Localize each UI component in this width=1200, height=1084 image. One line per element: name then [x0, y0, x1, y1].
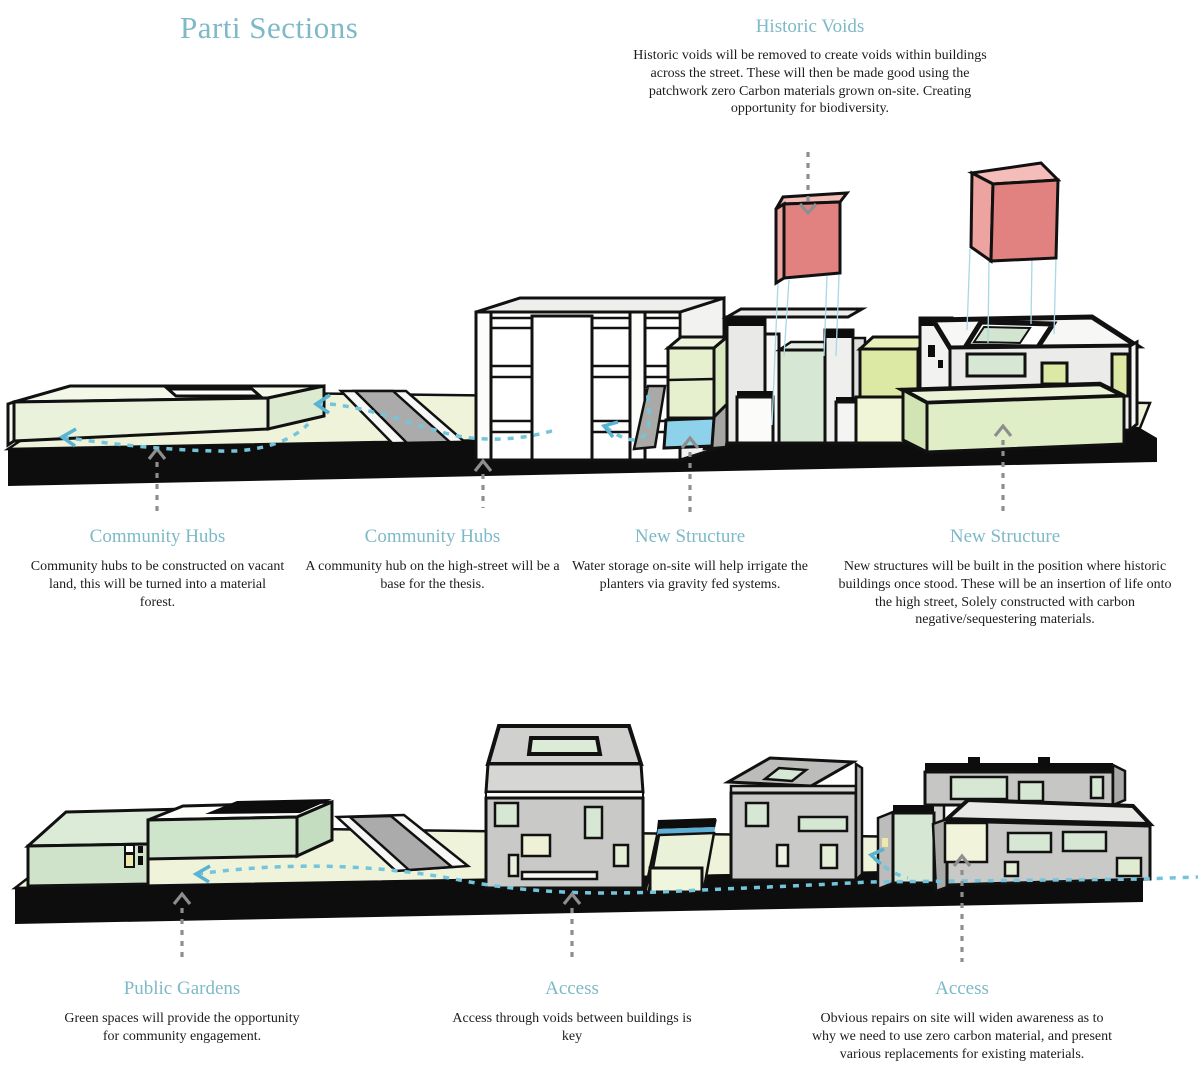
window [522, 835, 550, 856]
annotation-body: Community hubs to be constructed on vaca… [30, 558, 285, 611]
window [1091, 777, 1103, 798]
window [1042, 363, 1067, 384]
annotation-access-1: Access Access through voids between buil… [442, 978, 702, 1046]
window [522, 872, 597, 879]
annotation-access-2: Access Obvious repairs on site will wide… [807, 978, 1117, 1063]
parti-sections-diagram: Parti Sections Historic Voids Historic v… [0, 0, 1200, 1084]
annotation-body: Water storage on-site will help irrigate… [565, 558, 815, 594]
right-repaired-buildings [925, 757, 1150, 891]
window [509, 855, 518, 876]
window [614, 845, 628, 866]
window [585, 807, 602, 838]
annotation-community-hubs-2: Community Hubs A community hub on the hi… [305, 526, 560, 594]
window [951, 777, 1007, 799]
annotation-heading: Access [442, 978, 702, 1000]
annotation-heading: Historic Voids [630, 16, 990, 38]
window [746, 803, 768, 826]
core-tower [532, 316, 592, 460]
annotation-heading: Public Gardens [57, 978, 307, 1000]
window [945, 823, 987, 862]
annotation-heading: Community Hubs [305, 526, 560, 548]
window [495, 803, 518, 826]
annotation-body: A community hub on the high-street will … [305, 558, 560, 594]
middle-repaired-building [728, 758, 862, 880]
window [799, 817, 847, 831]
annotation-heading: Community Hubs [30, 526, 285, 548]
annotation-heading: New Structure [832, 526, 1178, 548]
page-title: Parti Sections [180, 10, 358, 46]
annotation-body: Historic voids will be removed to create… [630, 47, 990, 118]
annotation-public-gardens: Public Gardens Green spaces will provide… [57, 978, 307, 1046]
historic-void-cube-left [776, 193, 847, 283]
top-section-drawing [0, 130, 1200, 520]
window [1117, 858, 1141, 876]
window [1063, 832, 1106, 851]
historic-voids-building-left [727, 309, 865, 443]
window [125, 854, 134, 867]
annotation-body: Access through voids between buildings i… [442, 1010, 702, 1046]
annotation-body: New structures will be built in the posi… [832, 558, 1178, 629]
void-alley-structure [645, 818, 716, 892]
roof-courtyard [974, 327, 1030, 343]
skylight [529, 738, 600, 754]
window [1019, 782, 1043, 801]
window [1005, 862, 1018, 876]
annotation-heading: Access [807, 978, 1117, 1000]
annotation-body: Obvious repairs on site will widen aware… [807, 1010, 1117, 1063]
annotation-historic-voids: Historic Voids Historic voids will be re… [630, 16, 990, 118]
annotation-new-structure-2: New Structure New structures will be bui… [832, 526, 1178, 629]
annotation-heading: New Structure [565, 526, 815, 548]
annotation-body: Green spaces will provide the opportunit… [57, 1010, 307, 1046]
window [967, 354, 1025, 376]
window [821, 845, 837, 868]
annotation-new-structure-1: New Structure Water storage on-site will… [565, 526, 815, 594]
water-tank-icon [664, 418, 714, 448]
void-slot [779, 350, 825, 443]
historic-void-cube-right [971, 163, 1058, 261]
roof-hatch [168, 389, 260, 396]
window [1008, 833, 1051, 852]
window [777, 845, 788, 866]
bottom-section-drawing [0, 690, 1200, 980]
new-structure-building [903, 384, 1124, 452]
access-building [486, 726, 643, 888]
window [882, 838, 888, 847]
annotation-community-hubs-1: Community Hubs Community hubs to be cons… [30, 526, 285, 611]
